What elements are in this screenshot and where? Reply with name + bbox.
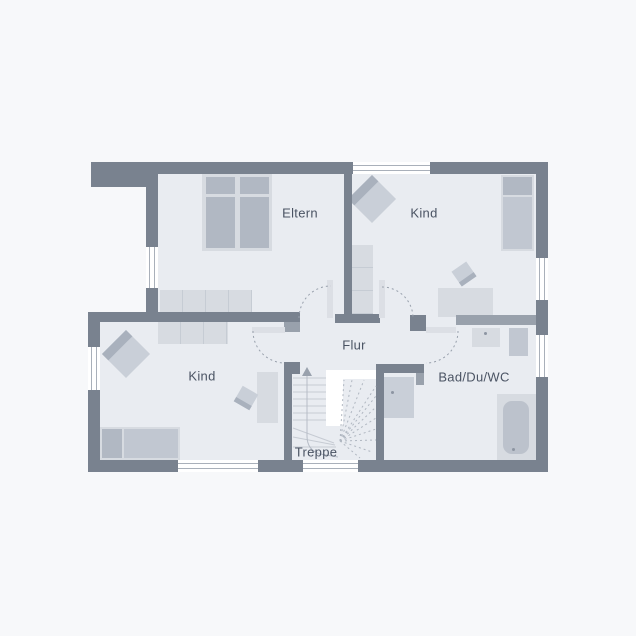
bad-door-arc (426, 331, 458, 363)
room-label-kind-top: Kind (410, 206, 437, 221)
stair-up-arrow-icon (302, 367, 312, 376)
room-label-bad: Bad/Du/WC (438, 370, 509, 385)
kind-bottom-door-arc (253, 331, 285, 363)
floor-plan: Eltern Kind Kind Flur Treppe Bad/Du/WC (0, 0, 636, 636)
room-label-flur: Flur (342, 338, 366, 353)
stair-treads-straight (293, 378, 336, 447)
eltern-door-arc (299, 286, 331, 318)
plan-linework (0, 0, 636, 636)
room-label-treppe: Treppe (295, 445, 338, 460)
room-label-kind-bottom: Kind (188, 369, 215, 384)
kind-top-door-arc (382, 287, 413, 318)
room-label-eltern: Eltern (282, 206, 318, 221)
stair-treads-fan (340, 380, 376, 458)
